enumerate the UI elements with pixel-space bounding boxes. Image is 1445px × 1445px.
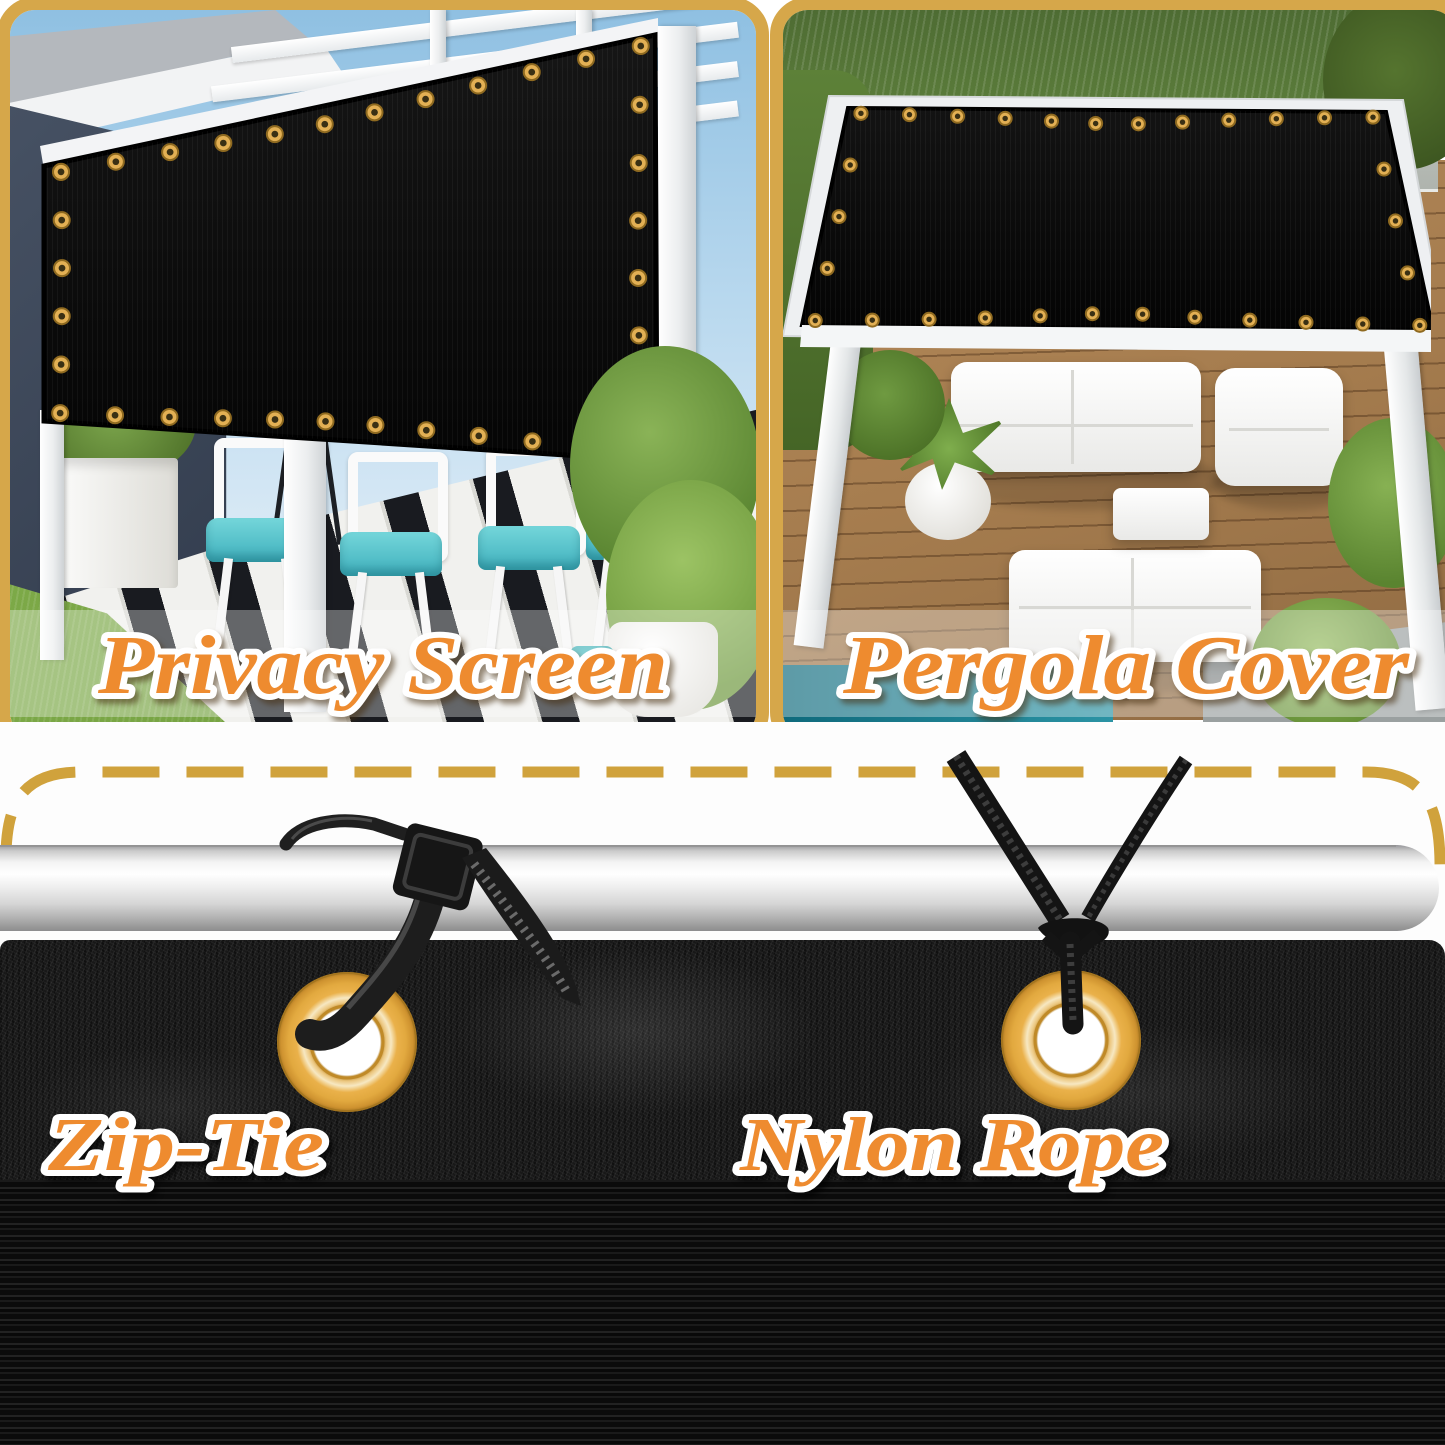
grommet-hole <box>113 158 120 165</box>
grommet-hole <box>1180 119 1185 124</box>
grommet-hole <box>1049 118 1054 123</box>
privacy-label: Privacy Screen <box>10 570 756 720</box>
grommet-hole <box>112 412 119 419</box>
cover-weave <box>802 108 1431 330</box>
grommet-hole <box>1247 317 1252 322</box>
grommet-hole <box>1381 166 1386 171</box>
pergola-scene: Pergola Cover <box>783 10 1445 737</box>
grommet-hole <box>813 318 818 323</box>
pergola-label: Pergola Cover <box>783 570 1445 720</box>
grommet-hole <box>58 313 65 320</box>
grommet-hole <box>635 160 642 167</box>
rope-braid <box>1070 944 1073 1020</box>
grommet-hole <box>1370 114 1375 119</box>
grommet-hole <box>636 332 643 339</box>
grommet-hole <box>870 317 875 322</box>
grommet-hole <box>272 416 279 423</box>
grommet-hole <box>847 162 852 167</box>
grommet-hole <box>58 361 65 368</box>
grommet-hole <box>836 214 841 219</box>
grommet-hole <box>1192 314 1197 319</box>
grommet-hole <box>220 140 227 147</box>
grommet-hole <box>983 315 988 320</box>
grommet-hole <box>907 112 912 117</box>
grommet-hole <box>1393 218 1398 223</box>
grommet-hole <box>529 438 536 445</box>
grommet-hole <box>1274 116 1279 121</box>
grommet-hole <box>955 114 960 119</box>
grommet-hole <box>636 101 643 108</box>
grommet-hole <box>475 433 482 440</box>
support-pole <box>0 845 1439 931</box>
privacy-scene: Privacy Screen <box>10 10 756 737</box>
grommet-hole <box>1303 320 1308 325</box>
grommet-hole <box>423 427 430 434</box>
grommet-hole <box>1136 121 1141 126</box>
grommet-hole <box>371 109 378 116</box>
grommet-hole <box>58 168 65 175</box>
grommet-hole <box>583 56 590 63</box>
grommet-hole <box>1140 311 1145 316</box>
zip-tie-label: Zip-Tie <box>47 1103 324 1187</box>
grommet-hole <box>1037 313 1042 318</box>
grommet-hole <box>1322 115 1327 120</box>
grommet-hole <box>59 265 66 272</box>
grommet-hole <box>858 111 863 116</box>
grommet-hole <box>422 96 429 103</box>
privacy-screen-label: Privacy Screen <box>97 619 668 712</box>
grommet-hole <box>635 275 642 282</box>
pergola-cover-label: Pergola Cover <box>842 619 1411 712</box>
grommet-hole <box>167 149 174 156</box>
grommet-hole <box>271 131 278 138</box>
grommet-hole <box>1405 270 1410 275</box>
grommet-hole <box>220 415 227 422</box>
grommet-hole <box>57 410 64 417</box>
grommet-hole <box>1417 323 1422 328</box>
grommet-hole <box>58 217 65 224</box>
grommet-hole <box>637 43 644 50</box>
grommet-hole <box>475 82 482 89</box>
privacy-screen-panel: Privacy Screen <box>0 0 769 750</box>
grommet-hole <box>1226 117 1231 122</box>
grommet-hole <box>1093 121 1098 126</box>
installation-detail: Zip-Tie Nylon Rope <box>0 722 1445 1445</box>
pergola-cover-panel: Pergola Cover <box>770 0 1445 750</box>
zip-tie-loop <box>286 821 404 844</box>
grommet-hole <box>166 414 173 421</box>
grommet-hole <box>926 317 931 322</box>
grommet-hole <box>1002 116 1007 121</box>
grommet-hole <box>321 121 328 128</box>
grommet-hole <box>322 418 329 425</box>
grommet-hole <box>635 217 642 224</box>
nylon-rope-label: Nylon Rope <box>739 1103 1164 1187</box>
grommet-hole <box>1090 311 1095 316</box>
grommet-hole <box>372 422 379 429</box>
grommet-hole <box>528 69 535 76</box>
grommet-hole <box>1360 321 1365 326</box>
product-collage: Privacy Screen <box>0 0 1445 1445</box>
installation-overlay: Zip-Tie Nylon Rope <box>0 722 1445 1445</box>
grommet-hole <box>825 266 830 271</box>
